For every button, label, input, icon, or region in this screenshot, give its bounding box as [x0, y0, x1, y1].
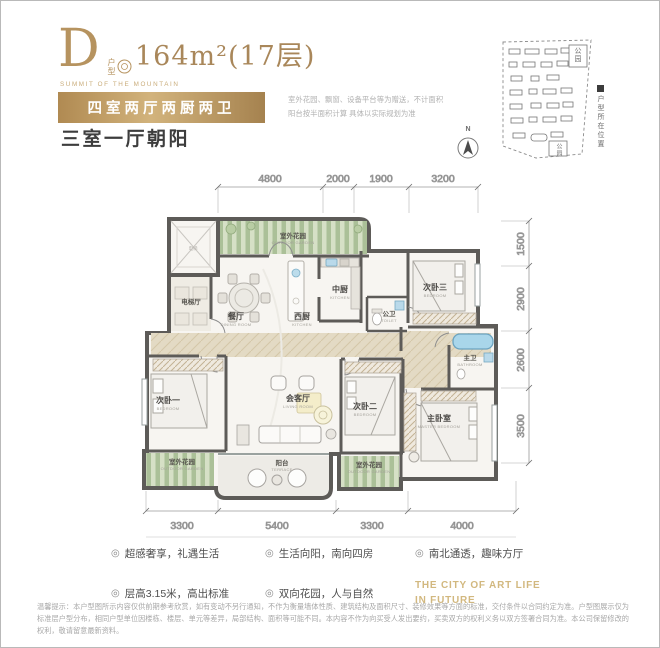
feature-text: 南北通透，趣味方厅: [429, 546, 524, 561]
svg-text:4800: 4800: [258, 173, 282, 185]
plan-type-label: 户型: [106, 58, 117, 76]
dimensions-top: 4800 2000 1900 3200: [215, 173, 481, 213]
hall-floor: [401, 331, 449, 388]
park-label-bottom: 公园: [554, 143, 563, 157]
bedroom2-label: 次卧二: [353, 401, 377, 411]
area-text: 164m²: [135, 41, 228, 72]
area-floor-line: 164m²(17层): [135, 34, 315, 73]
garden-bl-label: 室外花园: [169, 457, 196, 466]
feature-text: 双向花园，人与自然: [279, 586, 374, 601]
garden-br-label: 室外花园: [356, 460, 383, 469]
svg-text:5400: 5400: [265, 520, 289, 532]
bullet-icon: ◎: [415, 548, 424, 559]
living-label: 会客厅: [286, 393, 310, 403]
layout-badge: 四室两厅两厨两卫: [58, 92, 265, 123]
disclaimer-text: 温馨提示：本户型图所示内容仅供前期参考欣赏，如有变动不另行通知，不作为衡量墙体性…: [37, 601, 629, 638]
svg-text:2900: 2900: [515, 287, 527, 311]
bedroom3-label: 次卧三: [423, 282, 447, 292]
feature-item: ◎ 生活向阳，南向四房: [265, 546, 415, 561]
svg-text:4000: 4000: [450, 520, 474, 532]
seal-icon: [117, 59, 132, 74]
master-bedroom-label: 主卧室: [427, 413, 451, 423]
svg-text:OUTDOOR GARDEN: OUTDOOR GARDEN: [272, 240, 315, 245]
brand-slogan-line1: THE CITY OF ART LIFE: [415, 578, 571, 593]
svg-text:LIVING ROOM: LIVING ROOM: [283, 404, 313, 409]
feature-text: 生活向阳，南向四房: [279, 546, 374, 561]
gift-note-line1: 室外花园、飘窗、设备平台等为赠送，不计面积: [288, 93, 443, 107]
svg-text:3200: 3200: [431, 173, 455, 185]
floorplan-brochure-page: 电梯: [0, 0, 660, 648]
master-bath-label: 主卫: [464, 353, 478, 362]
svg-text:2600: 2600: [515, 348, 527, 372]
feature-list: ◎ 超感奢享，礼遇生活 ◎ 生活向阳，南向四房 ◎ 南北通透，趣味方厅 ◎ 层高…: [111, 546, 571, 608]
plan-letter: D: [58, 23, 100, 75]
bullet-icon: ◎: [111, 588, 120, 599]
svg-text:OUTDOOR GARDEN: OUTDOOR GARDEN: [161, 466, 204, 471]
svg-text:2000: 2000: [326, 173, 350, 185]
svg-text:BEDROOM: BEDROOM: [157, 406, 180, 411]
svg-text:3500: 3500: [515, 414, 527, 438]
bedroom1-label: 次卧一: [156, 395, 180, 405]
svg-text:BEDROOM: BEDROOM: [354, 412, 377, 417]
west-kitchen-label: 西厨: [294, 311, 310, 321]
bullet-icon: ◎: [111, 548, 120, 559]
svg-text:OUTDOOR GARDEN: OUTDOOR GARDEN: [348, 469, 391, 474]
svg-text:KITCHEN: KITCHEN: [292, 322, 312, 327]
gift-note: 室外花园、飘窗、设备平台等为赠送，不计面积 阳台按半面积计算 具体以实际规划为准: [288, 93, 443, 121]
svg-text:KITCHEN: KITCHEN: [330, 295, 350, 300]
public-bath-label: 公卫: [383, 310, 397, 318]
bullet-icon: ◎: [265, 588, 274, 599]
svg-text:1500: 1500: [515, 232, 527, 256]
chinese-kitchen-label: 中厨: [332, 284, 348, 294]
svg-text:MASTER BEDROOM: MASTER BEDROOM: [418, 424, 461, 429]
series-tagline: SUMMIT OF THE MOUNTAIN: [60, 81, 180, 88]
svg-text:BEDROOM: BEDROOM: [424, 293, 447, 298]
dimensions-right: 1500 2900 2600 3500: [501, 218, 532, 466]
svg-text:3300: 3300: [360, 520, 384, 532]
feature-item: ◎ 超感奢享，礼遇生活: [111, 546, 265, 561]
legend-text: 户型所在位置: [595, 95, 605, 149]
feature-text: 超感奢享，礼遇生活: [125, 546, 220, 561]
balcony-label: 阳台: [276, 458, 290, 467]
dining-label: 餐厅: [227, 311, 244, 321]
elevator-hall-label: 电梯厅: [181, 297, 201, 306]
svg-text:N: N: [465, 126, 470, 133]
svg-text:DINING ROOM: DINING ROOM: [221, 322, 252, 327]
feature-item: ◎ 南北通透，趣味方厅: [415, 546, 571, 561]
svg-text:3300: 3300: [170, 520, 194, 532]
legend-square-icon: [597, 85, 604, 92]
svg-text:BATHROOM: BATHROOM: [457, 362, 482, 367]
elevator-label: 电梯: [189, 245, 198, 252]
feature-text: 层高3.15米，高出标准: [125, 586, 229, 601]
gift-note-line2: 阳台按半面积计算 具体以实际规划为准: [288, 107, 443, 121]
location-legend: 户型所在位置: [595, 85, 605, 149]
bullet-icon: ◎: [265, 548, 274, 559]
svg-text:TERRACE: TERRACE: [271, 467, 292, 472]
svg-text:1900: 1900: [369, 173, 393, 185]
park-label-top: 公园: [572, 47, 582, 63]
orientation-subtitle: 三室一厅朝阳: [61, 124, 190, 151]
compass-icon: N: [458, 126, 478, 158]
svg-text:TOILET: TOILET: [381, 318, 397, 323]
floor-text: (17层): [228, 41, 315, 72]
garden-top-label: 室外花园: [280, 231, 307, 240]
